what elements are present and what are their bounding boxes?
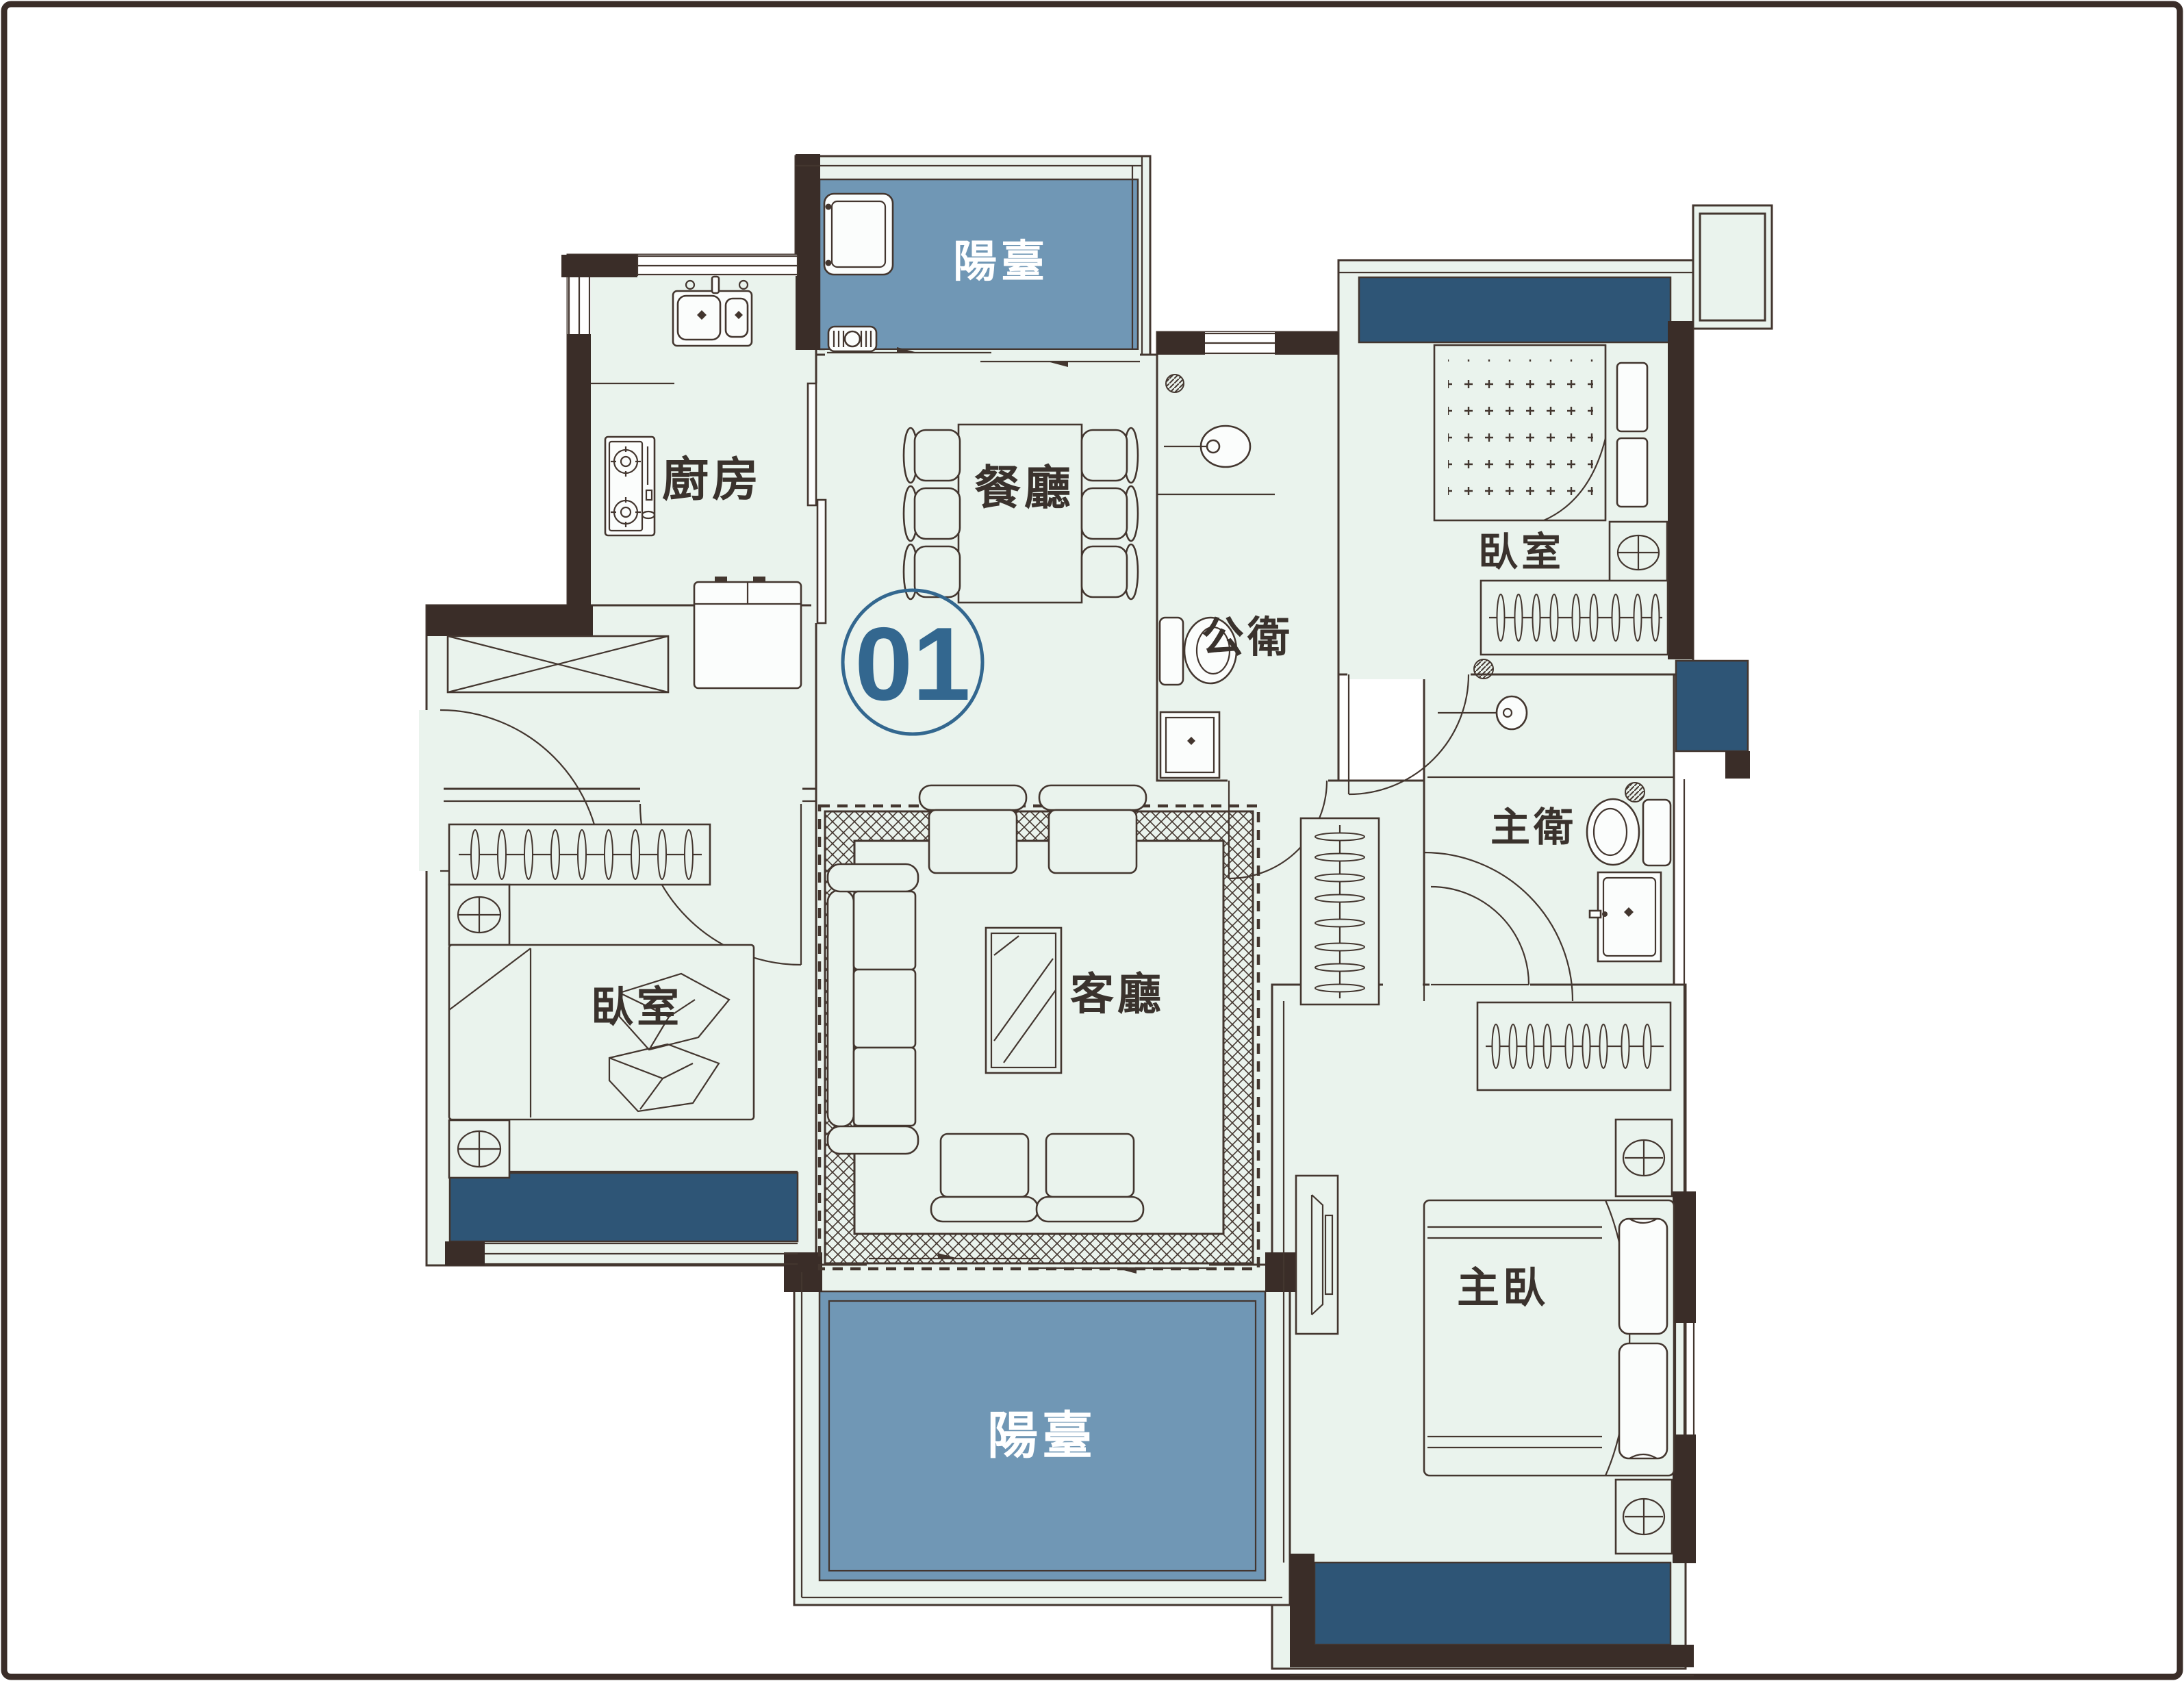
drain-icon: [1166, 375, 1184, 392]
bedside-shelf2: [1617, 438, 1647, 507]
wall-stub-side-window: [1725, 751, 1750, 779]
unit-number: 01: [854, 606, 970, 722]
tv-cabinet-icon: [1296, 1176, 1338, 1334]
opening-bedroom-left: [640, 785, 802, 805]
coffee-table-icon: [986, 928, 1061, 1073]
armchair-bottom2: [1037, 1134, 1143, 1222]
wall-master-east-upper: [1673, 1191, 1696, 1323]
closet-master: [1477, 1002, 1671, 1090]
floor-plan: 陽臺 廚房 餐廳 公衛 臥室 主衛 臥室 客廳 主臥 陽臺 01: [0, 0, 2184, 1681]
side-window-master-bath: [1676, 661, 1748, 751]
stove-icon: [605, 437, 655, 535]
bed-master-icon: [1424, 1200, 1674, 1476]
wall-publicbath-top-left: [1157, 332, 1205, 355]
wall-master-east-lower: [1673, 1434, 1696, 1563]
nightstand-master2: [1616, 1480, 1672, 1554]
slider-kitchen-panel2: [817, 500, 826, 623]
fridge-icon: [694, 577, 801, 688]
washing-machine-icon: [824, 194, 893, 275]
nightstand-left2: [449, 1120, 509, 1178]
sofa-icon: [828, 864, 918, 1154]
label-bedroom-left: 臥室: [591, 984, 683, 1031]
opening-entry: [419, 710, 444, 871]
wall-master-bay-sill: [1290, 1645, 1694, 1667]
armchair-top1: [919, 785, 1026, 873]
label-master-bath: 主衛: [1490, 805, 1577, 850]
washer-dot2: [826, 260, 832, 266]
bay-window-bedroom-left: [450, 1173, 798, 1241]
ac-platform-inner: [1700, 214, 1765, 320]
wardrobe-left-bedroom: [449, 824, 710, 885]
toilet-icon-master: [1587, 799, 1671, 865]
label-kitchen: 廚房: [662, 454, 762, 506]
opening-bedroom-right: [1347, 670, 1471, 679]
label-balcony-top: 陽臺: [953, 237, 1049, 286]
label-bedroom-right: 臥室: [1478, 530, 1564, 574]
nightstand-right-bedroom: [1610, 522, 1667, 583]
unit-badge: 01: [843, 590, 982, 734]
slider-kitchen-panel1: [808, 383, 816, 505]
wall-entry-top: [427, 605, 593, 636]
label-living: 客廳: [1070, 970, 1165, 1019]
label-dining: 餐廳: [974, 462, 1074, 514]
bedside-shelf1: [1617, 363, 1647, 431]
wall-kitchen-top: [561, 255, 637, 277]
opening-master-bedroom: [1383, 981, 1423, 989]
bed-right-icon: [1434, 345, 1605, 520]
nightstand-left1: [449, 885, 509, 945]
label-balcony-bottom: 陽臺: [987, 1407, 1097, 1464]
wall-publicbath-top-right: [1275, 332, 1338, 355]
wall-master-bay-left: [1290, 1554, 1315, 1647]
window-kitchen-top: [637, 255, 798, 276]
wall-bedroom-right-east: [1668, 321, 1693, 659]
label-master-bedroom: 主臥: [1457, 1265, 1549, 1312]
drain-master2: [1625, 783, 1645, 802]
wall-balcony-bottom-left: [784, 1252, 822, 1292]
closet-vertical: [1301, 818, 1379, 1004]
window-kitchen-left: [568, 277, 591, 334]
shoe-cabinet-icon: [448, 636, 668, 692]
armchair-bottom1: [931, 1134, 1038, 1222]
drain-master1: [1474, 659, 1493, 679]
washer-dot1: [826, 204, 832, 210]
nightstand-master1: [1616, 1120, 1672, 1196]
shower-tray-icon: [1160, 712, 1219, 778]
water-heater-icon: [828, 327, 876, 351]
opening-public-bath: [1228, 776, 1328, 785]
vanity-icon-master: [1590, 872, 1661, 961]
floor-plan-page: 陽臺 廚房 餐廳 公衛 臥室 主衛 臥室 客廳 主臥 陽臺 01: [0, 0, 2184, 1681]
bay-window-bedroom-right: [1359, 277, 1671, 342]
wall-kitchen-left: [568, 334, 591, 607]
armchair-top2: [1039, 785, 1146, 873]
bay-window-master-bedroom: [1315, 1563, 1671, 1645]
bed-left-icon: [449, 945, 754, 1120]
entry-items: [448, 636, 668, 692]
wall-bedroom-left-sill: [445, 1241, 485, 1265]
wall-balcony-top-left: [796, 154, 820, 350]
label-public-bath: 公衛: [1202, 614, 1293, 661]
wardrobe-right-bedroom: [1481, 581, 1668, 655]
window-public-bath: [1205, 332, 1275, 355]
